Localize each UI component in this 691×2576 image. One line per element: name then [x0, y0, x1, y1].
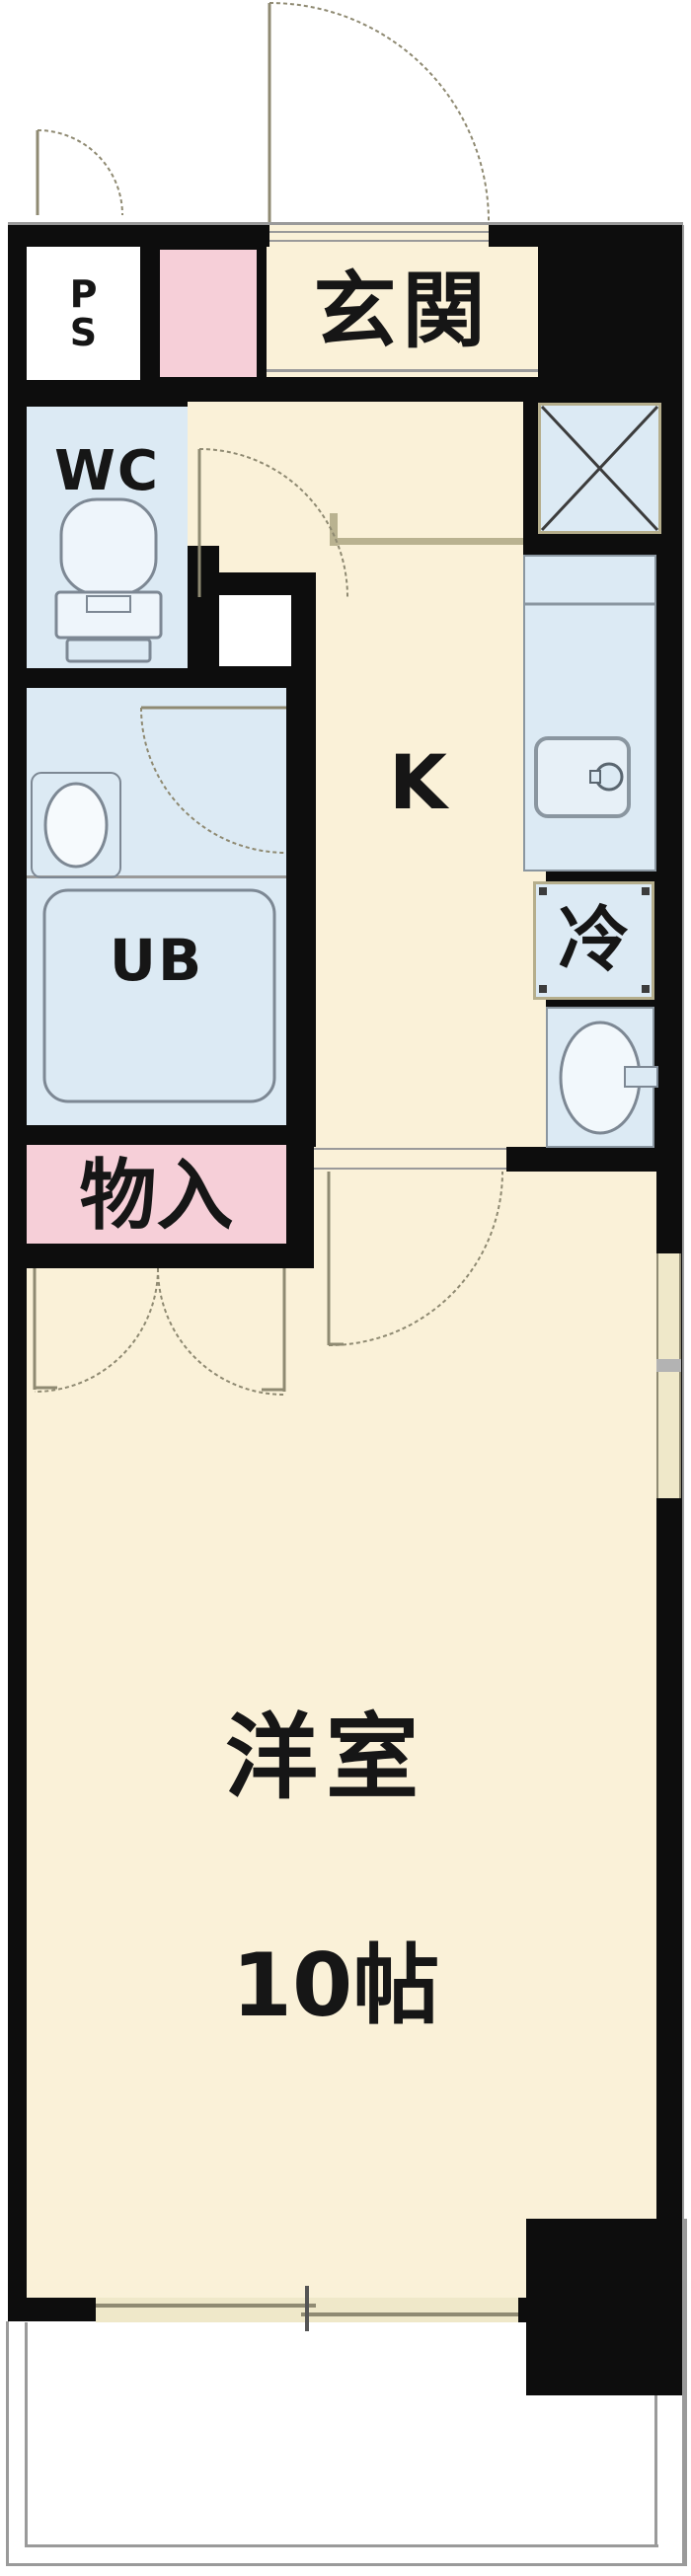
- balcony-window-rail-right: [301, 2312, 520, 2316]
- shoe-cabinet: [160, 250, 257, 377]
- label-genkan: 玄関: [267, 253, 538, 371]
- right-window-lower: [656, 1372, 681, 1498]
- balcony-inner-right: [654, 2395, 657, 2547]
- balcony-outer-bottom: [6, 2563, 687, 2566]
- shaft-box: [219, 595, 291, 666]
- balcony-outer-left: [6, 2321, 9, 2566]
- kitchen-entry-sill-h: [338, 538, 523, 545]
- duct-x-space: [538, 403, 661, 534]
- kitchen-door-opening-line-bottom: [314, 1168, 506, 1170]
- right-window-mullion: [656, 1359, 681, 1372]
- corridor-lower: [219, 546, 316, 572]
- label-wc: WC: [27, 426, 188, 517]
- label-unit-bath: UB: [27, 916, 286, 1007]
- balcony-inner-left: [25, 2322, 28, 2547]
- corridor: [188, 402, 523, 546]
- floor-plan: P S 玄関 WC K 冷 UB 物入 洋室 10帖: [0, 0, 691, 2576]
- balcony-window-center-tick: [305, 2286, 309, 2331]
- entrance-sill-line-1: [269, 231, 489, 233]
- label-main-room: 洋室: [79, 1709, 573, 1808]
- entrance-door-arc: [269, 3, 489, 222]
- kitchen-counter: [523, 555, 656, 871]
- laundry-pan-box: [546, 1007, 654, 1148]
- entrance-door-sill: [269, 225, 489, 247]
- balcony-outer-right: [684, 2219, 687, 2566]
- washroom-ub-divider: [27, 875, 286, 878]
- label-storage: 物入: [27, 1150, 286, 1244]
- entrance-sill-line-2: [269, 240, 489, 242]
- balcony-window-end-block: [518, 2298, 538, 2322]
- ps-door-arc: [38, 130, 122, 215]
- label-ps: P S: [27, 247, 140, 380]
- label-kitchen: K: [316, 735, 520, 829]
- label-fridge: 冷: [533, 881, 654, 1000]
- kitchen-entry-sill-v: [330, 513, 338, 546]
- right-window-upper: [656, 1253, 681, 1359]
- wall-pillar-bottom-right: [526, 2219, 683, 2395]
- right-wall-outline: [682, 225, 684, 2566]
- room-kitchen-floor: [316, 546, 523, 1147]
- label-main-room-size: 10帖: [89, 1936, 582, 2035]
- balcony-window-rail-left: [96, 2304, 316, 2308]
- room-washroom-and-ub: [27, 688, 286, 1125]
- balcony-inner-bottom: [25, 2544, 658, 2547]
- kitchen-door-opening-line-top: [314, 1148, 506, 1150]
